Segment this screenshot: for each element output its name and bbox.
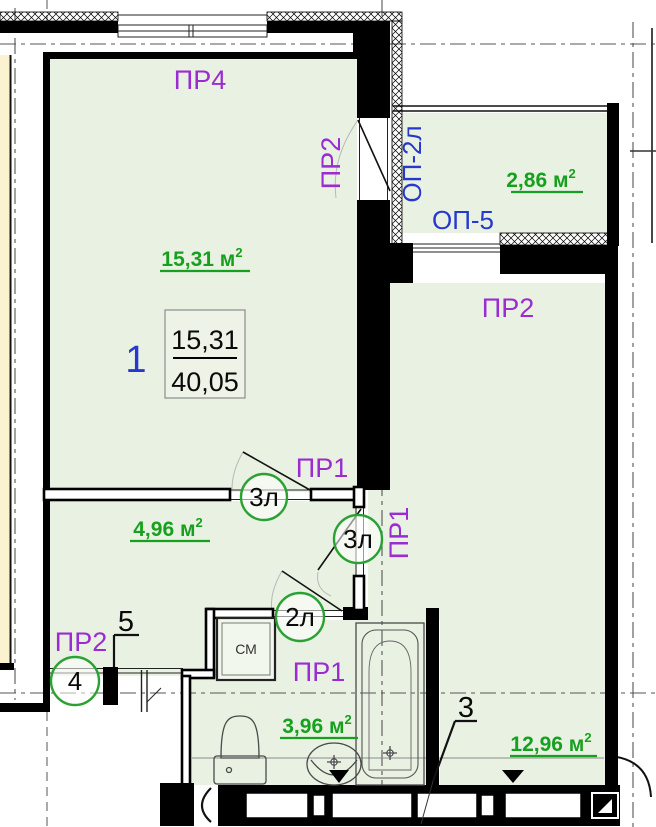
spec-total-area: 40,05 — [171, 367, 239, 397]
area-label-hallway: 4,96 м2 — [133, 515, 202, 541]
area-label-kitchen: 12,96 м2 — [510, 730, 591, 756]
neighbor-room-fill — [0, 55, 9, 663]
room-number-living: 1 — [125, 339, 146, 381]
floor-plan-canvas: СМ ПР4 П — [0, 0, 656, 827]
window-op5 — [413, 244, 500, 252]
label-pr1-kitchen-door: ПР1 — [384, 507, 414, 559]
label-op-5: ОП-5 — [432, 205, 494, 235]
label-pr2-kitchen-window: ПР2 — [482, 293, 534, 323]
label-pr1-hall-door: ПР1 — [296, 453, 348, 483]
svg-text:4: 4 — [68, 666, 82, 696]
floor-plan-drawing: СМ ПР4 П — [0, 0, 656, 827]
door-mark-4: 4 — [51, 657, 99, 705]
callout-3: 3 — [458, 692, 474, 724]
label-op-2l: ОП-2л — [397, 125, 427, 202]
level-mark-square — [592, 793, 618, 818]
door-arc-bottom-right — [617, 757, 651, 797]
balcony-glazing — [393, 106, 619, 111]
svg-text:3л: 3л — [249, 482, 279, 512]
area-label-living: 15,31 м2 — [161, 245, 242, 271]
washing-machine: СМ — [217, 618, 275, 680]
label-pr2-entry-door: ПР2 — [55, 627, 107, 657]
washing-machine-label: СМ — [235, 641, 257, 657]
svg-text:2л: 2л — [285, 602, 315, 632]
living-room-fill — [48, 57, 357, 492]
bottom-facade-wall — [160, 783, 620, 826]
room-spec-box: 15,31 40,05 — [165, 310, 245, 398]
area-label-bathroom: 3,96 м2 — [282, 712, 351, 738]
door-mark-2l: 2л — [276, 593, 324, 641]
area-label-balcony: 2,86 м2 — [506, 166, 575, 192]
spec-room-area: 15,31 — [171, 325, 239, 355]
door-arc-bottom-left — [202, 788, 211, 822]
door-mark-3l-1: 3л — [241, 474, 287, 520]
svg-text:3л: 3л — [343, 524, 373, 554]
label-pr4: ПР4 — [174, 65, 226, 95]
label-pr1-bath-door: ПР1 — [293, 657, 345, 687]
label-pr2-balcony-door: ПР2 — [316, 137, 346, 189]
callout-5: 5 — [118, 606, 134, 638]
window-pr4 — [118, 15, 267, 37]
door-mark-3l-2: 3л — [334, 515, 382, 563]
